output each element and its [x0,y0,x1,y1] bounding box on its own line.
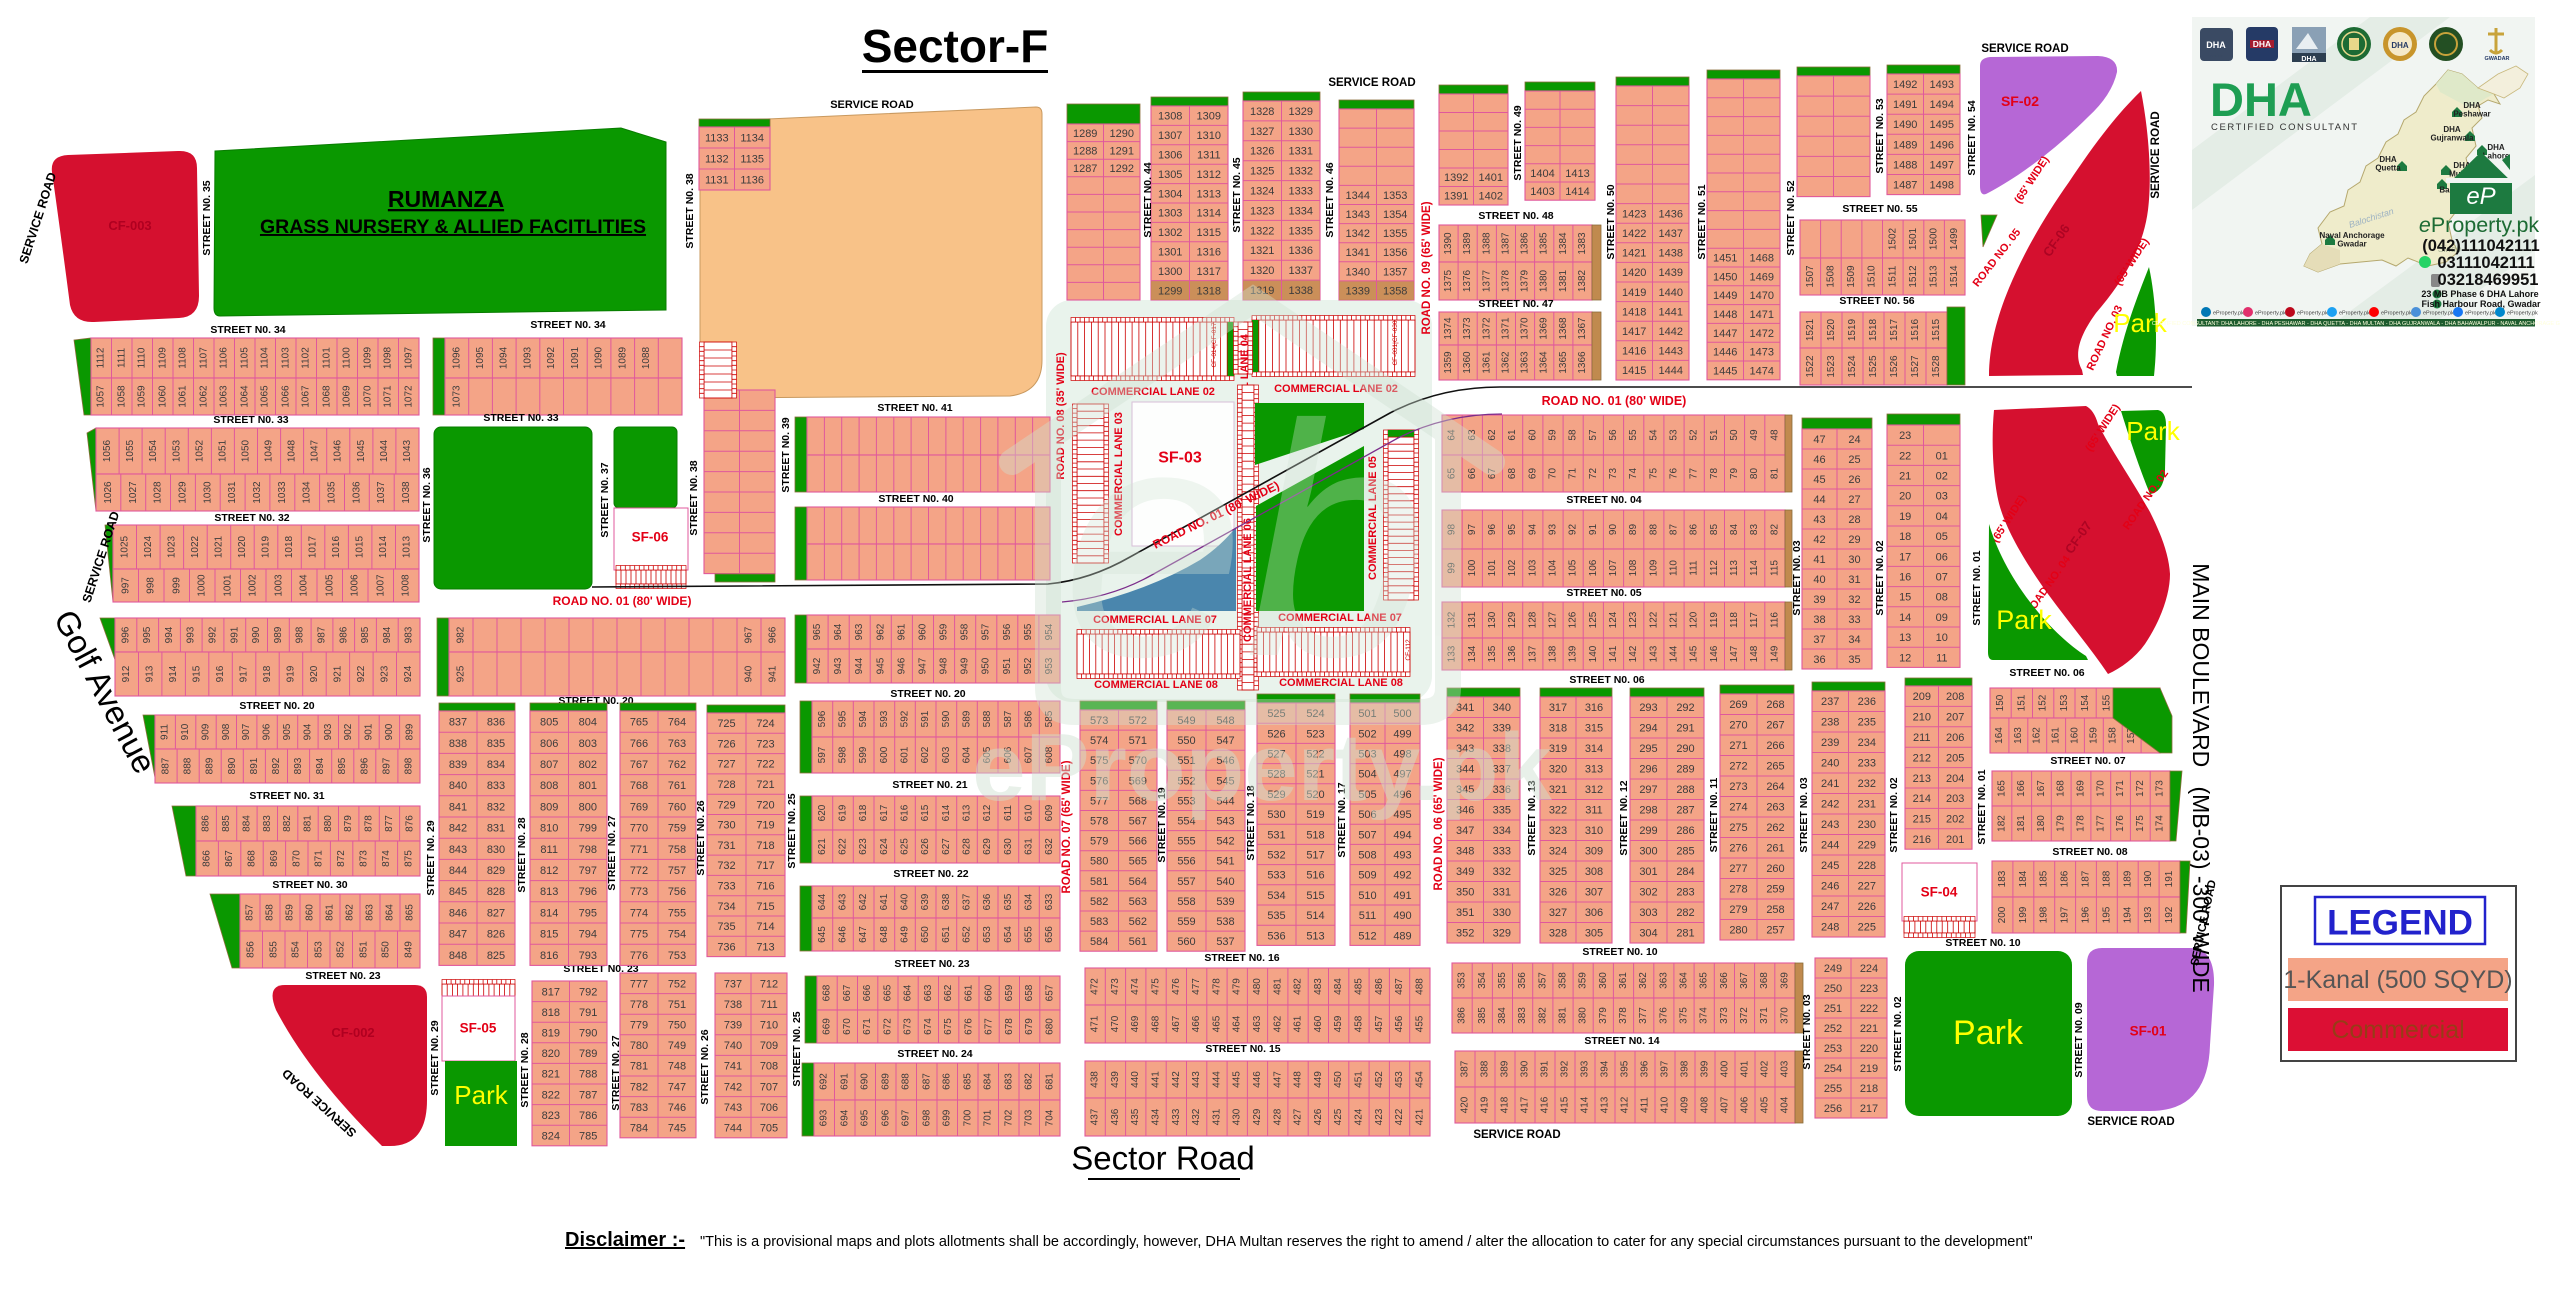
svg-text:731: 731 [717,840,735,852]
svg-text:125: 125 [1588,611,1599,628]
svg-text:378: 378 [1618,1007,1629,1024]
svg-text:1523: 1523 [1826,355,1837,378]
svg-text:1006: 1006 [350,574,361,597]
svg-text:1338: 1338 [1289,285,1313,297]
svg-text:1299: 1299 [1158,285,1182,297]
svg-text:147: 147 [1729,645,1740,662]
svg-text:1472: 1472 [1750,328,1774,340]
svg-text:957: 957 [981,623,992,640]
svg-text:771: 771 [630,844,648,856]
svg-text:eProperty.pk: eProperty.pk [2419,213,2540,237]
svg-text:439: 439 [1110,1071,1121,1088]
svg-text:224: 224 [1860,963,1878,975]
svg-text:225: 225 [1858,922,1876,934]
svg-text:580: 580 [1090,856,1108,868]
svg-text:626: 626 [920,838,931,855]
svg-text:892: 892 [271,757,282,774]
svg-text:STREET N0. 02: STREET N0. 02 [1874,540,1886,615]
svg-text:654: 654 [1003,926,1014,943]
svg-text:1437: 1437 [1659,228,1683,240]
svg-text:STREET N0. 25: STREET N0. 25 [786,793,798,868]
svg-text:366: 366 [1719,972,1730,989]
svg-text:742: 742 [724,1081,742,1093]
svg-text:1383: 1383 [1577,232,1588,255]
svg-text:eProperty.pk: eProperty.pk [2213,311,2244,317]
svg-text:999: 999 [171,577,182,594]
svg-text:1355: 1355 [1383,228,1407,240]
svg-text:1112: 1112 [96,347,107,368]
svg-text:1095: 1095 [475,346,486,369]
svg-text:09: 09 [1936,612,1948,624]
svg-text:420: 420 [1460,1096,1471,1113]
svg-text:274: 274 [1729,802,1747,814]
svg-text:1518: 1518 [1868,318,1879,341]
svg-text:117: 117 [1749,612,1760,628]
svg-text:1-Kanal (500 SQYD): 1-Kanal (500 SQYD) [2283,966,2512,994]
svg-text:1060: 1060 [157,385,168,408]
svg-text:1362: 1362 [1500,351,1511,374]
svg-text:508: 508 [1358,850,1376,862]
svg-text:473: 473 [1110,978,1121,995]
svg-text:1332: 1332 [1289,166,1313,178]
svg-text:200: 200 [1997,906,2008,923]
svg-text:1487: 1487 [1893,180,1917,192]
svg-text:877: 877 [384,815,395,832]
svg-text:387: 387 [1460,1060,1471,1077]
svg-text:129: 129 [1507,611,1518,628]
svg-text:683: 683 [1003,1073,1014,1090]
svg-text:492: 492 [1393,870,1411,882]
svg-text:674: 674 [923,1018,934,1035]
svg-text:887: 887 [161,757,172,774]
svg-text:192: 192 [2164,906,2175,923]
svg-text:640: 640 [900,893,911,910]
svg-text:563: 563 [1129,896,1147,908]
svg-text:215: 215 [1913,814,1931,826]
svg-text:721: 721 [756,779,774,791]
svg-text:361: 361 [1618,972,1629,989]
svg-text:STREET N0. 33: STREET N0. 33 [213,414,288,426]
svg-text:958: 958 [960,623,971,640]
svg-text:832: 832 [487,801,505,813]
svg-text:1420: 1420 [1622,267,1646,279]
svg-text:eProperty.pk: eProperty.pk [2465,311,2496,317]
svg-text:474: 474 [1130,978,1141,995]
svg-text:817: 817 [542,986,560,998]
svg-text:684: 684 [983,1073,994,1090]
svg-text:406: 406 [1740,1096,1751,1113]
svg-text:162: 162 [2032,727,2043,744]
svg-text:788: 788 [579,1069,597,1081]
svg-text:47: 47 [1813,434,1825,446]
svg-text:118: 118 [1729,612,1740,628]
svg-text:SERVICE ROAD: SERVICE ROAD [1328,77,1415,89]
svg-text:SF-04: SF-04 [1921,885,1958,900]
svg-text:30: 30 [1848,554,1860,566]
svg-text:380: 380 [1578,1007,1589,1024]
svg-text:204: 204 [1946,773,1964,785]
svg-text:34: 34 [1848,634,1860,646]
svg-text:66: 66 [1467,468,1478,480]
svg-text:996: 996 [120,626,131,643]
svg-text:724: 724 [756,718,774,730]
svg-text:STREET N0. 44: STREET N0. 44 [1142,162,1154,237]
svg-text:55: 55 [1628,429,1639,441]
svg-text:150: 150 [1995,694,2006,711]
svg-text:58: 58 [1568,429,1579,441]
svg-text:784: 784 [630,1123,648,1135]
svg-text:1287: 1287 [1073,163,1097,175]
svg-text:334: 334 [1493,825,1511,837]
svg-text:229: 229 [1858,840,1876,852]
svg-text:1305: 1305 [1158,169,1182,181]
svg-text:744: 744 [724,1123,742,1135]
svg-text:10: 10 [1936,632,1948,644]
svg-text:STREET N0. 33: STREET N0. 33 [483,412,558,424]
svg-text:332: 332 [1493,866,1511,878]
svg-text:260: 260 [1766,863,1784,875]
svg-text:810: 810 [540,823,558,835]
svg-text:275: 275 [1729,822,1747,834]
svg-text:564: 564 [1129,876,1147,888]
svg-text:180: 180 [2036,815,2047,832]
svg-text:1008: 1008 [401,574,412,597]
svg-text:40: 40 [1813,574,1825,586]
svg-text:1109: 1109 [157,347,168,369]
svg-text:STREET N0. 09: STREET N0. 09 [2073,1002,2085,1077]
svg-text:412: 412 [1620,1096,1631,1113]
svg-text:966: 966 [768,626,779,643]
svg-text:859: 859 [285,904,296,921]
svg-text:962: 962 [875,623,886,640]
svg-text:477: 477 [1191,978,1202,995]
svg-text:1515: 1515 [1931,318,1942,341]
svg-text:379: 379 [1598,1007,1609,1024]
svg-text:805: 805 [540,717,558,729]
svg-text:228: 228 [1858,860,1876,872]
svg-text:1524: 1524 [1847,355,1858,378]
svg-text:923: 923 [379,665,390,682]
svg-text:289: 289 [1676,764,1694,776]
svg-text:401: 401 [1740,1060,1751,1077]
svg-text:STREET N0. 03: STREET N0. 03 [1791,540,1803,615]
svg-text:623: 623 [858,838,869,855]
svg-text:773: 773 [630,886,648,898]
svg-text:245: 245 [1821,860,1839,872]
svg-text:1414: 1414 [1565,186,1589,198]
svg-text:803: 803 [579,738,597,750]
svg-text:1370: 1370 [1520,317,1531,340]
svg-text:DHA: DHA [2253,39,2271,49]
svg-text:1100: 1100 [342,347,353,369]
svg-text:1444: 1444 [1659,365,1683,377]
svg-text:384: 384 [1497,1007,1508,1024]
svg-text:1019: 1019 [261,535,272,558]
svg-text:687: 687 [921,1073,932,1090]
svg-text:783: 783 [630,1102,648,1114]
svg-text:LAHORE: LAHORE [2208,53,2225,58]
svg-text:729: 729 [717,799,735,811]
svg-text:08: 08 [1936,592,1948,604]
svg-text:1528: 1528 [1931,355,1942,378]
svg-text:165: 165 [1996,780,2007,797]
svg-text:679: 679 [1024,1018,1035,1035]
svg-text:1527: 1527 [1910,355,1921,378]
svg-text:400: 400 [1720,1060,1731,1077]
svg-text:1501: 1501 [1908,227,1919,250]
svg-text:158: 158 [2107,727,2118,744]
svg-text:220: 220 [1860,1043,1878,1055]
svg-text:330: 330 [1493,907,1511,919]
svg-text:258: 258 [1766,904,1784,916]
svg-text:749: 749 [668,1040,686,1052]
svg-text:625: 625 [900,838,911,855]
svg-text:665: 665 [882,984,893,1001]
svg-text:06: 06 [1936,551,1948,563]
svg-text:733: 733 [717,881,735,893]
svg-text:438: 438 [1090,1071,1101,1088]
svg-text:408: 408 [1700,1096,1711,1113]
svg-text:273: 273 [1729,781,1747,793]
svg-text:471: 471 [1090,1015,1101,1032]
svg-text:SERVICE ROAD: SERVICE ROAD [830,99,914,111]
svg-text:1313: 1313 [1197,188,1221,200]
svg-text:41: 41 [1813,554,1825,566]
svg-text:1038: 1038 [401,481,412,504]
svg-text:1088: 1088 [641,346,652,369]
svg-text:670: 670 [842,1018,853,1035]
svg-text:538: 538 [1216,916,1234,928]
svg-text:DHA: DHA [2391,41,2409,50]
svg-text:141: 141 [1608,645,1619,662]
svg-text:STREET N0. 27: STREET N0. 27 [610,1035,622,1110]
svg-text:131: 131 [1467,611,1478,628]
svg-text:581: 581 [1090,876,1108,888]
svg-text:1390: 1390 [1443,232,1454,255]
svg-text:STREET N0. 15: STREET N0. 15 [1205,1043,1280,1055]
svg-text:353: 353 [1457,972,1468,989]
svg-text:STREET N0. 16: STREET N0. 16 [1204,952,1279,964]
svg-text:828: 828 [487,886,505,898]
svg-text:907: 907 [241,723,252,740]
svg-text:194: 194 [2122,906,2133,923]
svg-text:142: 142 [1628,645,1639,662]
svg-text:82: 82 [1769,524,1780,536]
svg-text:475: 475 [1151,978,1162,995]
svg-text:955: 955 [1023,623,1034,640]
svg-text:STREET N0. 41: STREET N0. 41 [877,402,952,414]
svg-text:1030: 1030 [202,481,213,504]
svg-text:1374: 1374 [1443,317,1454,340]
svg-text:1508: 1508 [1825,265,1836,288]
svg-text:697: 697 [901,1109,912,1126]
svg-text:CERTIFIED CONSULTANT: CERTIFIED CONSULTANT [2211,122,2359,133]
svg-text:599: 599 [858,746,869,763]
svg-text:808: 808 [540,780,558,792]
svg-text:95: 95 [1507,524,1518,536]
svg-text:STREET N0. 34: STREET N0. 34 [530,319,605,331]
svg-text:622: 622 [838,838,849,855]
svg-text:1419: 1419 [1622,287,1646,299]
svg-text:1356: 1356 [1383,247,1407,259]
svg-text:STREET N0. 04: STREET N0. 04 [1566,494,1641,506]
svg-text:720: 720 [756,799,774,811]
svg-text:1517: 1517 [1889,318,1900,341]
svg-text:300: 300 [1639,846,1657,858]
svg-text:1134: 1134 [740,133,764,145]
svg-text:1026: 1026 [103,481,114,504]
svg-text:600: 600 [879,746,890,763]
svg-text:298: 298 [1639,805,1657,817]
svg-text:840: 840 [449,780,467,792]
svg-text:128: 128 [1527,611,1538,628]
svg-text:947: 947 [918,657,929,674]
svg-text:13: 13 [1899,632,1911,644]
svg-text:895: 895 [337,757,348,774]
svg-text:1304: 1304 [1158,188,1182,200]
svg-text:1102: 1102 [301,347,312,369]
svg-text:507: 507 [1358,829,1376,841]
svg-text:242: 242 [1821,799,1839,811]
svg-text:850: 850 [381,941,392,958]
svg-text:558: 558 [1177,896,1195,908]
svg-text:763: 763 [668,738,686,750]
svg-text:1307: 1307 [1158,130,1182,142]
svg-text:864: 864 [385,904,396,921]
svg-text:282: 282 [1676,907,1694,919]
svg-text:285: 285 [1676,846,1694,858]
svg-text:183: 183 [1997,870,2008,887]
svg-text:860: 860 [305,904,316,921]
svg-text:1136: 1136 [740,175,764,187]
svg-text:991: 991 [229,626,240,643]
svg-text:620: 620 [817,804,828,821]
svg-text:443: 443 [1191,1071,1202,1088]
svg-text:185: 185 [2039,870,2050,887]
svg-text:448: 448 [1293,1071,1304,1088]
svg-text:960: 960 [918,623,929,640]
svg-text:889: 889 [205,757,216,774]
svg-text:114: 114 [1749,560,1760,576]
svg-text:1471: 1471 [1750,309,1774,321]
svg-text:1018: 1018 [284,535,295,558]
svg-text:713: 713 [756,941,774,953]
svg-text:281: 281 [1676,928,1694,940]
svg-text:1449: 1449 [1713,290,1737,302]
svg-text:417: 417 [1520,1096,1531,1113]
svg-text:96: 96 [1487,524,1498,536]
svg-text:421: 421 [1414,1108,1425,1125]
svg-text:221: 221 [1860,1023,1878,1035]
svg-text:833: 833 [487,780,505,792]
svg-text:1291: 1291 [1110,145,1134,157]
svg-text:876: 876 [404,815,415,832]
svg-text:1373: 1373 [1462,317,1473,340]
svg-text:210: 210 [1913,712,1931,724]
svg-text:369: 369 [1779,972,1790,989]
svg-text:1315: 1315 [1197,227,1221,239]
svg-text:23 MB Phase 6 DHA Lahore: 23 MB Phase 6 DHA Lahore [2421,289,2538,299]
svg-text:122: 122 [1648,611,1659,628]
svg-text:943: 943 [833,657,844,674]
svg-text:1391: 1391 [1444,191,1468,203]
svg-text:911: 911 [160,724,171,740]
svg-text:829: 829 [487,865,505,877]
svg-text:STREET N0. 20: STREET N0. 20 [239,700,314,712]
svg-text:154: 154 [2080,694,2091,711]
svg-text:STREET N0. 38: STREET N0. 38 [684,173,696,248]
svg-text:1037: 1037 [376,481,387,504]
svg-text:42: 42 [1813,534,1825,546]
svg-text:1303: 1303 [1158,208,1182,220]
svg-text:297: 297 [1639,784,1657,796]
svg-text:1496: 1496 [1930,139,1954,151]
svg-text:680: 680 [1044,1018,1055,1035]
svg-text:692: 692 [819,1073,830,1090]
svg-text:152: 152 [2038,694,2049,711]
svg-text:540: 540 [1216,876,1234,888]
svg-text:STREET N0. 36: STREET N0. 36 [421,467,433,542]
svg-text:693: 693 [819,1109,830,1126]
svg-text:STREET N0. 32: STREET N0. 32 [214,512,289,524]
svg-text:RUMANZA: RUMANZA [388,186,504,212]
svg-text:698: 698 [921,1109,932,1126]
svg-text:699: 699 [942,1109,953,1126]
svg-text:950: 950 [981,657,992,674]
svg-text:04: 04 [1936,511,1948,523]
svg-text:891: 891 [249,757,260,774]
svg-text:108: 108 [1628,559,1639,576]
svg-text:75: 75 [1648,468,1659,480]
svg-text:1314: 1314 [1197,208,1221,220]
svg-text:252: 252 [1824,1023,1842,1035]
svg-text:1066: 1066 [280,385,291,408]
svg-text:164: 164 [1994,727,2005,744]
svg-text:621: 621 [817,838,828,855]
svg-text:444: 444 [1211,1071,1222,1088]
svg-text:208: 208 [1946,691,1964,703]
svg-text:76: 76 [1669,468,1680,480]
svg-text:653: 653 [982,926,993,943]
svg-text:381: 381 [1558,1007,1569,1024]
svg-text:812: 812 [540,865,558,877]
svg-text:STREET N0. 47: STREET N0. 47 [1478,298,1553,310]
svg-text:92: 92 [1568,524,1579,536]
svg-text:STREET N0. 12: STREET N0. 12 [1618,780,1630,855]
svg-text:1092: 1092 [546,346,557,369]
svg-text:370: 370 [1779,1007,1790,1024]
svg-text:518: 518 [1306,829,1324,841]
svg-text:644: 644 [817,893,828,910]
svg-text:STREET N0. 01: STREET N0. 01 [1971,550,1983,625]
svg-text:671: 671 [862,1018,873,1035]
svg-text:894: 894 [315,757,326,774]
svg-text:1329: 1329 [1289,106,1313,118]
svg-text:395: 395 [1620,1060,1631,1077]
svg-text:106: 106 [1588,559,1599,576]
svg-text:583: 583 [1090,916,1108,928]
svg-text:1525: 1525 [1868,355,1879,378]
svg-text:109: 109 [1648,559,1659,576]
svg-text:1521: 1521 [1805,318,1816,341]
svg-text:686: 686 [942,1073,953,1090]
svg-text:863: 863 [365,904,376,921]
svg-text:1322: 1322 [1250,225,1274,237]
svg-text:143: 143 [1648,645,1659,662]
svg-text:1404: 1404 [1530,168,1554,180]
svg-text:781: 781 [630,1061,648,1073]
svg-text:965: 965 [812,623,823,640]
